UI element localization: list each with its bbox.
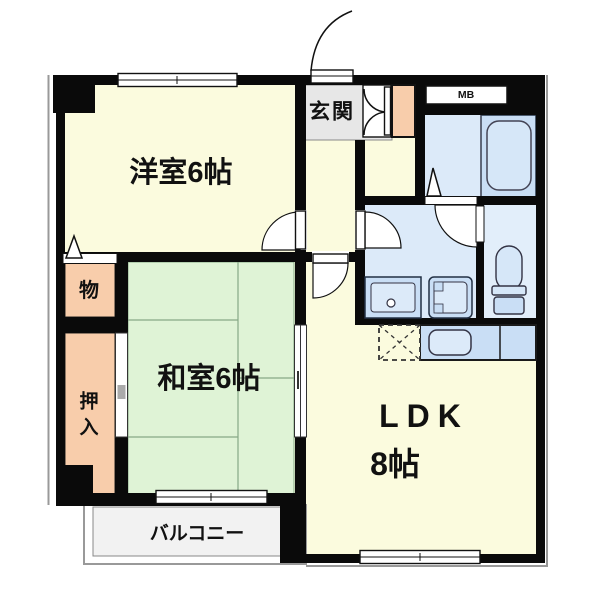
wall-kitchen-top — [355, 318, 536, 325]
washing-machine-space — [429, 277, 472, 318]
washroom-door-leaf — [356, 211, 365, 249]
kitchen-counter — [420, 325, 536, 360]
entrance-door — [311, 11, 353, 83]
kitchen-sink — [429, 330, 471, 355]
outline-right — [546, 75, 548, 565]
ldk-window — [360, 551, 480, 564]
japanese-room-window — [156, 491, 267, 504]
wall-center-vertical — [295, 85, 306, 505]
entrance-door-arc — [311, 11, 352, 71]
closet-label-char1: 押 — [79, 390, 98, 413]
western-room-label: 洋室6帖 — [129, 155, 232, 189]
outline-left — [48, 75, 50, 505]
vanity-sink — [365, 277, 421, 318]
entrance-closet-leaf — [385, 87, 391, 135]
ldk-label: LDK — [379, 398, 469, 434]
wall-toilet-top — [477, 196, 536, 205]
balcony-label: バルコニー — [150, 523, 245, 545]
entrance-label: 玄関 — [309, 100, 355, 124]
closet-label-char2: 入 — [79, 417, 98, 439]
western-room-window — [118, 74, 237, 87]
japanese-room-label: 和室6帖 — [157, 361, 260, 395]
wall-closet-notch — [57, 465, 93, 505]
refrigerator-space — [379, 325, 420, 360]
meter-box: MB — [426, 86, 507, 104]
outline-bottom — [306, 565, 548, 567]
meter-box-label: MB — [458, 89, 475, 101]
toilet-door — [476, 206, 484, 242]
wall-balcony-end — [280, 505, 306, 563]
japanese-room-sliding-door — [295, 325, 307, 437]
floor-plan-canvas: MB 洋室6帖 — [0, 0, 600, 600]
bathtub — [487, 121, 531, 190]
wall-bathroom-left — [415, 115, 425, 197]
wall-washroom-top — [365, 196, 425, 205]
floor-plan-drawing: MB 洋室6帖 — [0, 0, 600, 600]
shoe-cabinet — [392, 85, 415, 137]
wall-left — [56, 85, 65, 505]
entrance-closet — [363, 85, 391, 137]
closet-sliding-door — [116, 333, 128, 437]
storage-label: 物 — [79, 278, 99, 302]
western-room-door-leaf — [296, 211, 306, 249]
bathroom-threshold — [425, 197, 477, 205]
ldk-door-leaf — [313, 254, 348, 263]
wall-right — [536, 85, 545, 563]
toilet — [492, 246, 526, 314]
ldk-size-label: 8帖 — [370, 446, 420, 482]
